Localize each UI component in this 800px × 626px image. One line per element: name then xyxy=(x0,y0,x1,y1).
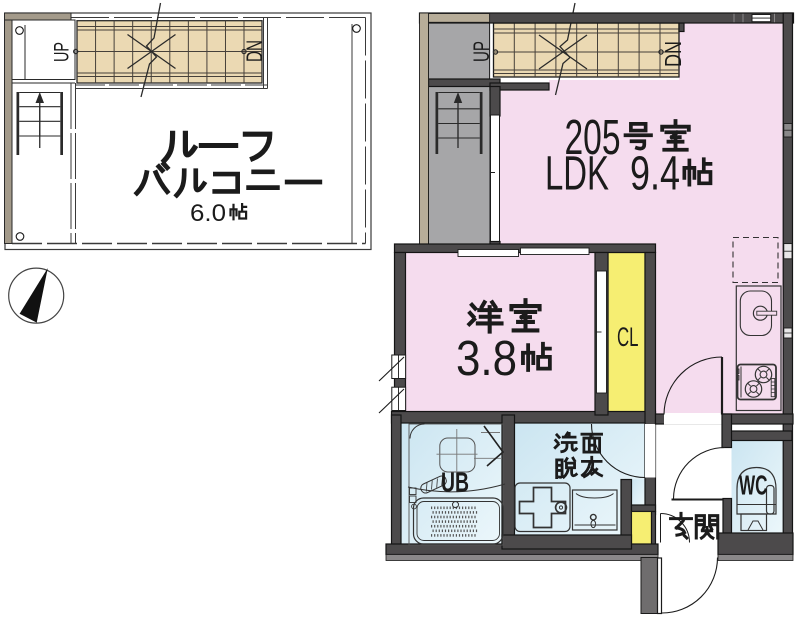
svg-text:UB: UB xyxy=(441,467,469,498)
svg-text:UP: UP xyxy=(469,41,494,62)
svg-text:CL: CL xyxy=(617,322,639,352)
svg-text:DN: DN xyxy=(660,41,686,67)
svg-text:LDK: LDK xyxy=(545,148,609,201)
svg-text:9.4: 9.4 xyxy=(630,148,680,201)
svg-text:6.0: 6.0 xyxy=(190,200,226,227)
svg-text:WC: WC xyxy=(739,470,768,501)
svg-text:3.8: 3.8 xyxy=(456,332,517,386)
svg-text:UP: UP xyxy=(51,42,74,62)
